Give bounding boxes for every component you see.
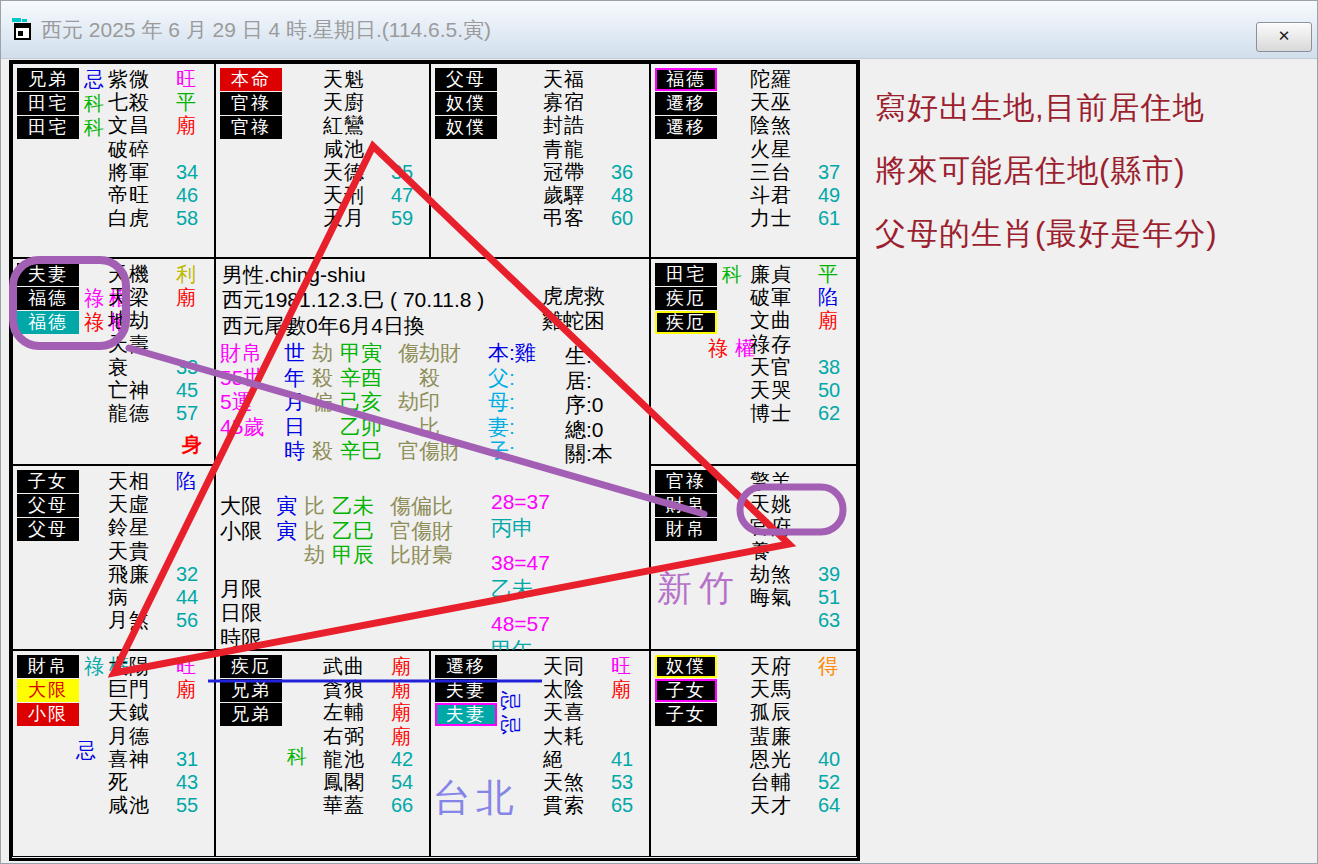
palace-label: 子女: [655, 703, 717, 726]
star-value: 利: [176, 263, 206, 286]
limit-branch: [276, 626, 304, 651]
star-row: 喜神31: [108, 748, 206, 771]
star-value: [391, 68, 421, 91]
star-value: 旺: [176, 655, 206, 678]
star-name: 武曲: [323, 655, 391, 678]
birth-info: 男性.ching-shiu西元1981.12.3.巳 ( 70.11.8 )西元…: [222, 262, 484, 338]
star-row: 絕41: [543, 748, 641, 771]
limit-row: 小限寅比乙巳官傷財: [220, 519, 453, 544]
star-value: 45: [176, 379, 206, 402]
star-value: 37: [818, 161, 848, 184]
star-value: [818, 540, 848, 563]
limit-god-pre: [304, 601, 332, 626]
limit-row: 大限寅比乙未傷偏比: [220, 494, 453, 519]
limit-ganzhi: 乙未: [332, 494, 390, 519]
star-row: 太陰廟: [543, 678, 641, 701]
star-value: 38: [818, 356, 848, 379]
star-row: 天廚: [323, 91, 421, 114]
pillar-key: 世: [284, 341, 312, 366]
star-row: 天機利: [108, 263, 206, 286]
decade-entry: 38=47乙未: [491, 550, 550, 601]
pillar-row: 45歲日乙卯 比: [220, 415, 461, 440]
limit-god-pre: 劫: [304, 543, 332, 568]
transform-marks: 祿權: [703, 337, 755, 360]
star-value: 64: [818, 794, 848, 817]
limit-branch: 寅: [276, 519, 304, 544]
star-list: 太陽旺巨門廟天鉞月德喜神31死43咸池55: [108, 655, 206, 817]
star-name: 官府: [750, 516, 818, 539]
pillar-label: [220, 439, 284, 464]
decade-list: 28=37丙申38=47乙未48=57甲午: [491, 489, 550, 672]
star-value: 53: [611, 771, 641, 794]
palace-label: 父母: [435, 68, 497, 91]
status-line: 關:本: [565, 442, 613, 467]
palace-r3c1[interactable]: 疾厄兄弟兄弟科武曲廟貪狼廟左輔廟右弼廟龍池42鳳閣54華蓋66: [215, 650, 430, 857]
birth-info-line: 西元尾數0年6月4日換: [222, 313, 484, 338]
status-list: 生:居:序:0總:0關:本: [565, 344, 613, 467]
star-row: 七殺平: [108, 91, 206, 114]
palace-labels: 官祿財帛財帛: [655, 470, 717, 542]
star-name: 太陽: [108, 655, 176, 678]
palace-r0c3[interactable]: 福德遷移遷移陀羅天巫陰煞火星三台37斗君49力士61: [650, 63, 857, 258]
star-row: 天煞53: [543, 771, 641, 794]
star-row: 破碎: [108, 138, 206, 161]
star-name: 破碎: [108, 138, 176, 161]
star-name: 天府: [750, 655, 818, 678]
star-name: 天鉞: [108, 701, 176, 724]
fate-note-line: 雞蛇困: [542, 308, 605, 333]
palace-label: 夫妻: [435, 703, 497, 726]
star-row: 飛廉32: [108, 563, 206, 586]
palace-labels: 田宅科疾厄疾厄: [655, 263, 742, 335]
star-row: 力士61: [750, 207, 848, 230]
star-value: 49: [818, 184, 848, 207]
palace-label: 遷移: [435, 655, 497, 678]
star-row: 文昌廟: [108, 114, 206, 137]
star-value: 廟: [391, 655, 421, 678]
star-row: 天虛: [108, 493, 206, 516]
star-name: 天姚: [750, 493, 818, 516]
star-value: 62: [818, 402, 848, 425]
star-row: 養: [750, 540, 848, 563]
star-value: 平: [176, 91, 206, 114]
limit-branch: 寅: [276, 494, 304, 519]
note-line-1: 寫好出生地,目前居住地: [875, 87, 1218, 129]
star-row: 台輔52: [750, 771, 848, 794]
star-value: [611, 725, 641, 748]
star-value: [176, 701, 206, 724]
star-row: 斗君49: [750, 184, 848, 207]
relation-line: 妻:: [488, 415, 536, 440]
star-value: 41: [611, 748, 641, 771]
star-name: 天魁: [323, 68, 391, 91]
palace-r0c1[interactable]: 本命官祿官祿天魁天廚紅鸞咸池天德35天刑47天月59: [215, 63, 430, 258]
decade-range: 28=37: [491, 489, 550, 515]
star-name: 孤辰: [750, 701, 818, 724]
pillar-label: 財帛: [220, 341, 284, 366]
palace-r3c3[interactable]: 奴僕子女子女天府得天馬孤辰蜚廉恩光40台輔52天才64: [650, 650, 857, 857]
star-name: 天廚: [323, 91, 391, 114]
star-name: 天梁: [108, 286, 176, 309]
pillar-god-post: 劫印: [398, 390, 440, 415]
fate-notes: 虎虎救雞蛇困: [542, 283, 605, 334]
star-name: 封誥: [543, 114, 611, 137]
star-value: 31: [176, 748, 206, 771]
limit-row: 日限: [220, 601, 453, 626]
star-row: 咸池: [323, 138, 421, 161]
star-row: 天德35: [323, 161, 421, 184]
limit-label: 日限: [220, 601, 276, 626]
palace-label: 財帛: [655, 494, 717, 517]
star-value: 66: [391, 794, 421, 817]
star-name: 貫索: [543, 794, 611, 817]
palace-label: 父母: [17, 518, 79, 541]
star-name: 天同: [543, 655, 611, 678]
star-value: [818, 725, 848, 748]
palace-r1c3[interactable]: 田宅科疾厄疾厄祿權廉貞平破軍陷文曲廟祿存天官38天哭50博士62: [650, 258, 857, 465]
star-row: 白虎58: [108, 207, 206, 230]
star-name: 晦氣: [750, 586, 818, 609]
note-line-2: 將來可能居住地(縣市): [875, 150, 1218, 192]
palace-label: 奴僕: [435, 92, 497, 115]
star-value: 廟: [391, 678, 421, 701]
star-value: 51: [818, 586, 848, 609]
star-value: [818, 470, 848, 493]
pillar-row: 5運月偏己亥劫印: [220, 390, 461, 415]
star-row: 華蓋66: [323, 794, 421, 817]
star-row: 文曲廟: [750, 309, 848, 332]
limit-ganzhi: 甲辰: [332, 543, 390, 568]
birth-info-line: 男性.ching-shiu: [222, 262, 484, 287]
star-name: 咸池: [108, 794, 176, 817]
star-row: 咸池55: [108, 794, 206, 817]
star-value: 48: [611, 184, 641, 207]
star-row: 右弼廟: [323, 725, 421, 748]
star-name: 病: [108, 586, 176, 609]
star-value: 47: [391, 184, 421, 207]
star-row: 蜚廉: [750, 725, 848, 748]
pillar-label: 45歲: [220, 415, 284, 440]
star-name: 弔客: [543, 207, 611, 230]
palace-label: 父母: [17, 494, 79, 517]
star-value: 廟: [391, 701, 421, 724]
palace-labels: 本命官祿官祿: [220, 68, 282, 140]
pillar-row: 時殺辛巳官傷財: [220, 439, 461, 464]
star-row: 死43: [108, 771, 206, 794]
limit-row: 月限: [220, 577, 453, 602]
pillar-ganzhi: 辛巳: [340, 439, 398, 464]
star-value: [176, 725, 206, 748]
star-value: 35: [391, 161, 421, 184]
star-row: 天官38: [750, 356, 848, 379]
star-row: 天梁廟: [108, 286, 206, 309]
star-name: 咸池: [323, 138, 391, 161]
transform-star: 忌: [501, 691, 521, 711]
star-name: 天德: [323, 161, 391, 184]
palace-label: 小限: [17, 703, 79, 726]
pillar-god-pre: 殺: [312, 439, 340, 464]
star-name: 月德: [108, 725, 176, 748]
star-row: 陀羅: [750, 68, 848, 91]
star-name: 天壽: [108, 333, 176, 356]
pillar-god-post: 比: [398, 415, 440, 440]
star-name: 紅鸞: [323, 114, 391, 137]
star-value: 52: [818, 771, 848, 794]
star-value: [818, 91, 848, 114]
star-name: 天月: [323, 207, 391, 230]
palace-r3c0[interactable]: 財帛祿權大限小限忌太陽旺巨門廟天鉞月德喜神31死43咸池55: [12, 650, 215, 857]
star-row: 火星: [750, 138, 848, 161]
app-window: 西元 2025 年 6 月 29 日 4 時.星期日.(114.6.5.寅) ✕…: [0, 0, 1318, 864]
status-line: 居:: [565, 369, 613, 394]
star-name: 天刑: [323, 184, 391, 207]
star-row: 龍德57: [108, 402, 206, 425]
star-value: 平: [818, 263, 848, 286]
star-value: 55: [176, 794, 206, 817]
star-row: 弔客60: [543, 207, 641, 230]
palace-r0c2[interactable]: 父母奴僕奴僕天福寡宿封誥青龍冠帶36歲驛48弔客60: [430, 63, 650, 258]
star-value: 廟: [176, 678, 206, 701]
star-value: 33: [176, 356, 206, 379]
star-value: [176, 138, 206, 161]
star-row: 封誥: [543, 114, 641, 137]
star-value: 42: [391, 748, 421, 771]
pillar-god-pre: [312, 415, 340, 440]
star-row: 月德: [108, 725, 206, 748]
star-row: 63: [750, 609, 848, 632]
star-name: 文昌: [108, 114, 176, 137]
pillar-ganzhi: 甲寅: [340, 341, 398, 366]
palace-label: 兄弟: [220, 703, 282, 726]
star-list: 天魁天廚紅鸞咸池天德35天刑47天月59: [323, 68, 421, 230]
relation-line: 本:雞: [488, 341, 536, 366]
pillar-label: 55世: [220, 366, 284, 391]
pillar-key: 日: [284, 415, 312, 440]
star-value: [818, 701, 848, 724]
star-row: 擎羊: [750, 470, 848, 493]
star-name: 台輔: [750, 771, 818, 794]
transform-star: 祿: [84, 311, 104, 334]
close-button[interactable]: ✕: [1256, 22, 1312, 52]
star-row: 紫微旺: [108, 68, 206, 91]
star-row: 貫索65: [543, 794, 641, 817]
star-name: 白虎: [108, 207, 176, 230]
star-value: 65: [611, 794, 641, 817]
star-row: 天喜: [543, 701, 641, 724]
limit-label: 小限: [220, 519, 276, 544]
star-value: 廟: [818, 309, 848, 332]
pillar-god-post: 官傷財: [398, 439, 461, 464]
star-value: 旺: [176, 68, 206, 91]
star-row: 天壽: [108, 333, 206, 356]
star-name: 死: [108, 771, 176, 794]
title-bar: 西元 2025 年 6 月 29 日 4 時.星期日.(114.6.5.寅) ✕: [1, 1, 1317, 59]
decade-ganzhi: 乙未: [491, 576, 550, 602]
star-value: [818, 333, 848, 356]
star-value: [818, 516, 848, 539]
star-name: 天相: [108, 470, 176, 493]
star-value: [818, 678, 848, 701]
star-value: 廟: [611, 678, 641, 701]
star-value: 57: [176, 402, 206, 425]
status-line: 生:: [565, 344, 613, 369]
star-value: 陷: [818, 286, 848, 309]
limit-label: 大限: [220, 494, 276, 519]
palace-label: 疾厄: [220, 655, 282, 678]
decade-range: 38=47: [491, 550, 550, 576]
star-value: 34: [176, 161, 206, 184]
star-value: [818, 68, 848, 91]
palace-label: 本命: [220, 68, 282, 91]
star-value: 36: [611, 161, 641, 184]
star-name: 鈴星: [108, 516, 176, 539]
star-row: 祿存: [750, 333, 848, 356]
star-value: 39: [818, 563, 848, 586]
transform-marks: 科: [282, 745, 307, 768]
star-value: [818, 114, 848, 137]
star-row: 巨門廟: [108, 678, 206, 701]
star-value: 50: [818, 379, 848, 402]
status-line: 總:0: [565, 418, 613, 443]
decade-range: 48=57: [491, 611, 550, 637]
star-name: 貪狼: [323, 678, 391, 701]
star-row: 青龍: [543, 138, 641, 161]
star-name: 太陰: [543, 678, 611, 701]
star-name: 斗君: [750, 184, 818, 207]
hsinchu-annotation: 新竹: [657, 565, 741, 612]
limit-label: 月限: [220, 577, 276, 602]
star-value: [391, 114, 421, 137]
star-name: 鳳閣: [323, 771, 391, 794]
star-row: 鳳閣54: [323, 771, 421, 794]
palace-r2c0[interactable]: 子女父母父母天相陷天虛鈴星天貴飛廉32病44月煞56: [12, 465, 215, 650]
star-row: 天姚: [750, 493, 848, 516]
limit-ganzhi: [332, 626, 390, 651]
limit-god-pre: [304, 626, 332, 651]
palace-r3c2[interactable]: 遷移夫妻夫妻忌忌天同旺太陰廟天喜大耗絕41天煞53貫索65: [430, 650, 650, 857]
star-list: 紫微旺七殺平文昌廟破碎將軍34帝旺46白虎58: [108, 68, 206, 230]
star-name: 天機: [108, 263, 176, 286]
palace-r2c3[interactable]: 官祿財帛財帛擎羊天姚官府養劫煞39晦氣5163: [650, 465, 857, 650]
star-row: 天刑47: [323, 184, 421, 207]
star-name: 火星: [750, 138, 818, 161]
pillar-key: 時: [284, 439, 312, 464]
star-value: 40: [818, 748, 848, 771]
palace-label: 田宅: [17, 116, 79, 139]
palace-label: 田宅: [655, 263, 717, 286]
star-name: 祿存: [750, 333, 818, 356]
star-name: 紫微: [108, 68, 176, 91]
limit-ganzhi: 乙巳: [332, 519, 390, 544]
star-value: 43: [176, 771, 206, 794]
limit-ganzhi: [332, 601, 390, 626]
star-value: 61: [818, 207, 848, 230]
birth-info-line: 西元1981.12.3.巳 ( 70.11.8 ): [222, 287, 484, 312]
star-list: 天同旺太陰廟天喜大耗絕41天煞53貫索65: [543, 655, 641, 817]
star-row: 天巫: [750, 91, 848, 114]
star-name: 力士: [750, 207, 818, 230]
star-row: 武曲廟: [323, 655, 421, 678]
star-row: 三台37: [750, 161, 848, 184]
star-row: 天鉞: [108, 701, 206, 724]
palace-label: 奴僕: [435, 116, 497, 139]
star-name: 天官: [750, 356, 818, 379]
star-name: 破軍: [750, 286, 818, 309]
star-value: 56: [176, 609, 206, 632]
star-value: [611, 701, 641, 724]
star-name: 衰: [108, 356, 176, 379]
palace-labels: 父母奴僕奴僕: [435, 68, 497, 140]
palace-label: 疾厄: [655, 287, 717, 310]
star-row: 歲驛48: [543, 184, 641, 207]
star-row: 恩光40: [750, 748, 848, 771]
palace-labels: 子女父母父母: [17, 470, 79, 542]
transform-star: 祿: [84, 655, 104, 678]
palace-r1c0[interactable]: 夫妻福德祿權福德祿權天機利天梁廟地劫天壽衰33亡神45龍德57身: [12, 258, 215, 465]
star-name: 冠帶: [543, 161, 611, 184]
star-row: 天府得: [750, 655, 848, 678]
transform-star: 祿: [84, 287, 104, 310]
star-name: 地劫: [108, 309, 176, 332]
star-row: 破軍陷: [750, 286, 848, 309]
star-list: 擎羊天姚官府養劫煞39晦氣5163: [750, 470, 848, 632]
star-name: 青龍: [543, 138, 611, 161]
star-value: 60: [611, 207, 641, 230]
star-name: 擎羊: [750, 470, 818, 493]
palace-label: 福德: [655, 68, 717, 91]
palace-label: 財帛: [655, 518, 717, 541]
star-list: 武曲廟貪狼廟左輔廟右弼廟龍池42鳳閣54華蓋66: [323, 655, 421, 817]
limit-god-post: 官傷財: [390, 519, 453, 544]
star-list: 陀羅天巫陰煞火星三台37斗君49力士61: [750, 68, 848, 230]
body-palace-marker: 身: [182, 431, 202, 458]
pillar-key: 年: [284, 366, 312, 391]
star-row: 孤辰: [750, 701, 848, 724]
palace-label: 福德: [17, 287, 79, 310]
star-name: 蜚廉: [750, 725, 818, 748]
palace-r0c0[interactable]: 兄弟忌田宅科田宅科紫微旺七殺平文昌廟破碎將軍34帝旺46白虎58: [12, 63, 215, 258]
palace-label: 兄弟: [17, 68, 79, 91]
star-row: 官府: [750, 516, 848, 539]
palace-label: 兄弟: [220, 679, 282, 702]
fate-note-line: 虎虎救: [542, 283, 605, 308]
center-panel: 男性.ching-shiu西元1981.12.3.巳 ( 70.11.8 )西元…: [215, 258, 650, 650]
star-name: 大耗: [543, 725, 611, 748]
palace-label: 夫妻: [17, 263, 79, 286]
palace-label: 疾厄: [655, 311, 717, 334]
star-list: 天機利天梁廟地劫天壽衰33亡神45龍德57: [108, 263, 206, 425]
transform-marks: 忌: [71, 739, 96, 762]
palace-label: 子女: [655, 679, 717, 702]
star-row: 衰33: [108, 356, 206, 379]
status-line: 序:0: [565, 393, 613, 418]
palace-labels: 福德遷移遷移: [655, 68, 717, 140]
star-value: 廟: [391, 725, 421, 748]
palace-label: 遷移: [655, 116, 717, 139]
star-row: 地劫: [108, 309, 206, 332]
limit-ganzhi: [332, 577, 390, 602]
star-value: [611, 114, 641, 137]
star-name: 天喜: [543, 701, 611, 724]
star-row: 病44: [108, 586, 206, 609]
star-list: 天相陷天虛鈴星天貴飛廉32病44月煞56: [108, 470, 206, 632]
transform-star: 科: [287, 745, 307, 768]
star-row: 天魁: [323, 68, 421, 91]
window-title: 西元 2025 年 6 月 29 日 4 時.星期日.(114.6.5.寅): [41, 16, 491, 44]
instruction-notes: 寫好出生地,目前居住地 將來可能居住地(縣市) 父母的生肖(最好是年分): [875, 87, 1218, 276]
star-value: 陷: [176, 470, 206, 493]
star-name: 陰煞: [750, 114, 818, 137]
